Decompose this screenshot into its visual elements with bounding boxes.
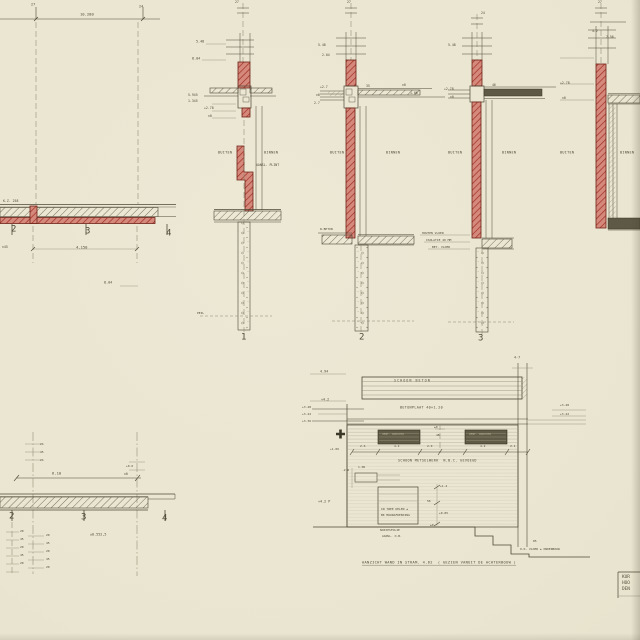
section-number-2: 2 bbox=[359, 333, 364, 342]
annotation-text: ISOLATIE 40 MM bbox=[426, 239, 451, 242]
annotation-text: 10.280 bbox=[80, 13, 94, 17]
annotation-text: 45 bbox=[20, 538, 24, 541]
annotation-text: ±0 bbox=[402, 84, 406, 87]
annotation-text: +2.78 bbox=[560, 82, 570, 85]
annotation-text: 27 bbox=[347, 1, 351, 4]
annotation-text: +3.42 bbox=[560, 413, 569, 416]
annotation-text: 85 bbox=[533, 540, 537, 543]
scanned-drawing-page: 272410.280K.Z. 258234±454.1508.042727242… bbox=[0, 0, 640, 640]
annotation-text: 5.48 bbox=[196, 40, 204, 43]
annotation-text: VENT. ROOSTER bbox=[382, 433, 404, 436]
annotation-text: IN TWEE DELEN ± bbox=[381, 508, 408, 511]
annotation-text: +3.48 bbox=[302, 406, 311, 409]
annotation-text: 45 bbox=[46, 558, 50, 561]
plan-strip-top-left bbox=[0, 7, 176, 286]
concrete-foundation-2 bbox=[355, 245, 368, 331]
annotation-text: 2.7 bbox=[314, 102, 320, 105]
red-wall-highlight-sec2-upper bbox=[346, 60, 356, 86]
annotation-text: 27 bbox=[235, 1, 239, 4]
annotation-text: +2.78 bbox=[444, 88, 454, 91]
annotation-text: SCHOON METSELWERK N.B.C. GEVOEGD bbox=[398, 459, 477, 462]
annotation-text: 1.345 bbox=[188, 100, 198, 103]
title-block-line-1: KUR bbox=[622, 575, 630, 579]
red-wall-highlight-sec1-lower bbox=[237, 146, 253, 211]
annotation-text: BINNEN bbox=[264, 151, 278, 154]
annotation-text: +3.42 bbox=[302, 413, 311, 416]
grid-number-3: 3 bbox=[85, 227, 90, 236]
annotation-text: ±45 bbox=[2, 246, 8, 249]
wall-section-2 bbox=[318, 3, 445, 335]
annotation-text: 20 bbox=[20, 546, 24, 549]
annotation-text: 48 bbox=[436, 434, 440, 437]
annotation-text: 2.04 bbox=[322, 54, 330, 57]
annotation-text: +0.6 bbox=[126, 465, 133, 468]
annotation-text: 56 bbox=[427, 500, 431, 503]
annotation-text: 20 bbox=[46, 550, 50, 553]
section-number-3: 3 bbox=[478, 334, 483, 343]
annotation-text: O.K. VLOER ± ONDERBOUW bbox=[520, 548, 560, 551]
annotation-text: 4.2 bbox=[592, 30, 598, 33]
annotation-text: +2.7 bbox=[320, 86, 328, 89]
annotation-text: SCHOON BETON bbox=[394, 379, 431, 382]
wall-section-1 bbox=[200, 3, 281, 332]
annotation-text: 20 bbox=[20, 562, 24, 565]
annotation-text: BUITEN bbox=[560, 151, 574, 154]
annotation-text: ±0 bbox=[316, 94, 320, 97]
annotation-text: HOUTEN VLOER bbox=[422, 232, 444, 235]
annotation-text: 8.04 bbox=[104, 281, 112, 284]
plan-detail-bottom-left bbox=[0, 432, 175, 576]
drawing-caption: AANZICHT WAND IN STRAM. 4.62 ( GEZIEN VA… bbox=[362, 561, 516, 565]
annotation-text: +3.48 bbox=[560, 404, 569, 407]
annotation-text: 24 bbox=[40, 443, 44, 446]
title-block-line-3: DEN bbox=[622, 587, 630, 591]
annotation-text: +3.36 bbox=[302, 420, 311, 423]
annotation-text: AANSL. O.B. bbox=[382, 535, 402, 538]
wall-section-3 bbox=[420, 14, 556, 336]
drawing-canvas bbox=[0, 0, 640, 640]
grid-number-4b: 4 bbox=[162, 514, 167, 523]
annotation-text: +2.78 bbox=[204, 107, 214, 110]
red-wall-highlight-sec1-upper bbox=[238, 62, 250, 88]
annotation-text: +4.2 P bbox=[318, 500, 330, 503]
annotation-text: ±0 bbox=[434, 426, 438, 429]
annotation-text: BINNEN bbox=[386, 151, 400, 154]
annotation-text: BUITEN bbox=[448, 151, 462, 154]
annotation-text: +0.85 bbox=[439, 512, 448, 515]
annotation-text: -2.6 bbox=[342, 469, 349, 472]
annotation-text: 20 bbox=[46, 534, 50, 537]
annotation-text: ±0 bbox=[562, 97, 566, 100]
annotation-text: 45 bbox=[20, 554, 24, 557]
annotation-text: ±0 bbox=[208, 115, 212, 118]
annotation-text: NOPJESFOLIE bbox=[380, 529, 400, 532]
annotation-text: 45 bbox=[46, 542, 50, 545]
red-wall-highlight-sec2-lower bbox=[346, 108, 355, 238]
annotation-text: PEIL bbox=[197, 312, 204, 315]
annotation-text: 20 bbox=[20, 530, 24, 533]
annotation-text: 1.06 bbox=[410, 92, 418, 95]
annotation-text: VENT. ROOSTER bbox=[469, 433, 491, 436]
annotation-text: 6.10 bbox=[52, 472, 61, 476]
annotation-text: BINNEN bbox=[502, 151, 516, 154]
annotation-text: ±0 bbox=[450, 96, 454, 99]
annotation-text: ±0.552,5 bbox=[90, 533, 106, 536]
red-wall-highlight-sec4 bbox=[596, 64, 606, 228]
red-wall-highlight-sec3-lower bbox=[472, 102, 481, 238]
annotation-text: 1.06 bbox=[358, 466, 365, 469]
annotation-text: 4.150 bbox=[76, 246, 87, 250]
red-wall-highlight-plan bbox=[0, 218, 155, 224]
annotation-text: R.BETON bbox=[320, 228, 333, 231]
annotation-text: 46 bbox=[492, 84, 496, 87]
title-block-line-2: HOO bbox=[622, 581, 630, 585]
annotation-text: 24 bbox=[481, 12, 485, 15]
annotation-text: +1.06 bbox=[330, 448, 339, 451]
annotation-text: 4.2 bbox=[480, 445, 485, 448]
annotation-text: BETONPLAAT 40×1.20 bbox=[400, 406, 443, 409]
registration-cross-mark bbox=[336, 430, 345, 439]
annotation-text: BUITEN bbox=[330, 151, 344, 154]
annotation-text: ±0 bbox=[430, 524, 434, 527]
annotation-text: 24 bbox=[139, 5, 143, 9]
annotation-text: 35 bbox=[366, 85, 370, 88]
grid-number-4: 4 bbox=[166, 229, 171, 238]
annotation-text: 27 bbox=[31, 3, 35, 7]
red-wall-highlight-sec3-upper bbox=[472, 60, 482, 86]
annotation-text: +1.4 bbox=[440, 485, 447, 488]
annotation-text: 20 bbox=[46, 566, 50, 569]
wall-section-4 bbox=[560, 3, 640, 230]
annotation-text: 4.94 bbox=[320, 370, 328, 373]
annotation-text: BK MUURAFDEKKING bbox=[381, 514, 410, 517]
annotation-text: 5.945 bbox=[188, 94, 198, 97]
annotation-text: 5.48 bbox=[318, 44, 326, 47]
annotation-text: 2.0 bbox=[427, 445, 432, 448]
annotation-text: 4.2 bbox=[394, 445, 399, 448]
annotation-text: BUITEN bbox=[218, 151, 232, 154]
annotation-text: 27 bbox=[598, 1, 602, 4]
annotation-text: 2.1 bbox=[510, 445, 515, 448]
annotation-text: K.Z. 258 bbox=[3, 200, 18, 203]
annotation-text: 45 bbox=[40, 451, 44, 454]
annotation-text: +4.2 bbox=[321, 398, 329, 401]
annotation-text: 4-7 bbox=[514, 356, 520, 359]
section-number-1: 1 bbox=[241, 333, 246, 342]
grid-number-2: 2 bbox=[11, 225, 16, 234]
annotation-text: 2.6 bbox=[360, 445, 365, 448]
annotation-text: BINNEN bbox=[620, 151, 634, 154]
annotation-text: 24 bbox=[40, 459, 44, 462]
annotation-text: ±0 bbox=[124, 473, 128, 476]
annotation-text: 5.48 bbox=[448, 44, 456, 47]
annotation-text: 8.04 bbox=[192, 57, 200, 60]
grid-number-3b: 3 bbox=[81, 513, 86, 522]
grid-number-2b: 2 bbox=[9, 512, 14, 521]
annotation-text: AANSL. PLINT bbox=[256, 164, 279, 167]
annotation-text: BET. VLOER bbox=[432, 246, 450, 249]
annotation-text: 7.56 bbox=[606, 36, 614, 39]
